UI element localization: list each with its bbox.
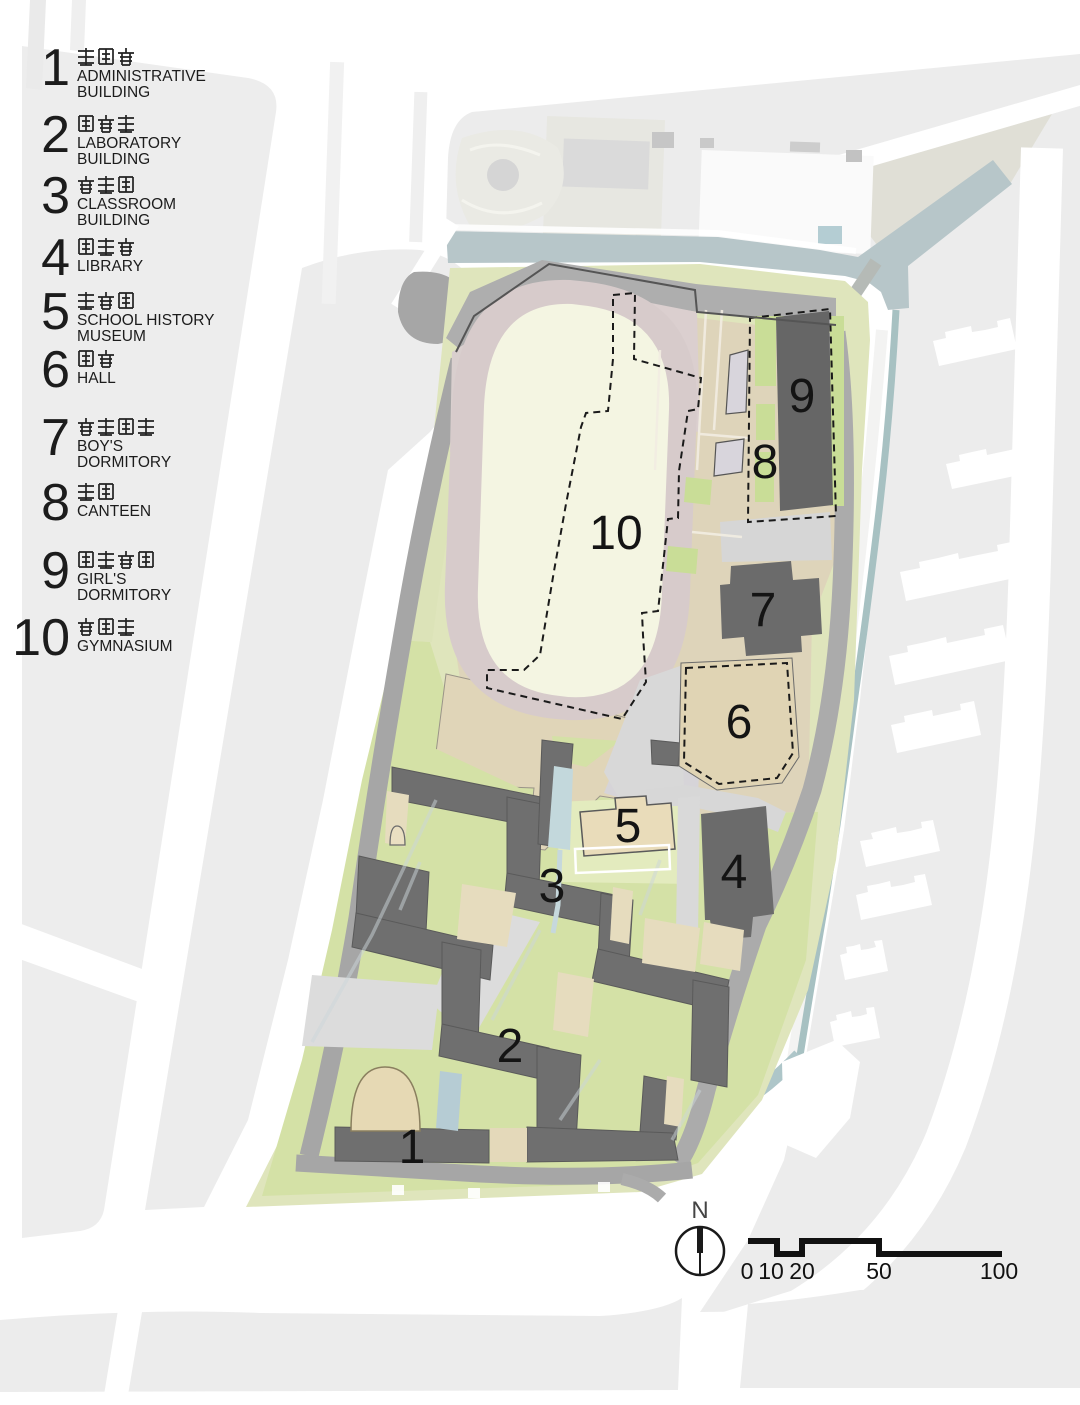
svg-text:2: 2 (41, 106, 70, 164)
svg-text:LABORATORY: LABORATORY (77, 135, 181, 152)
svg-text:10: 10 (758, 1258, 784, 1284)
svg-text:ADMINISTRATIVE: ADMINISTRATIVE (77, 68, 206, 85)
svg-text:5: 5 (41, 283, 70, 341)
svg-text:3: 3 (539, 860, 566, 913)
svg-text:GIRL'S: GIRL'S (77, 571, 126, 588)
svg-text:7: 7 (41, 409, 70, 467)
svg-text:1: 1 (41, 39, 70, 97)
svg-text:6: 6 (726, 696, 753, 749)
svg-text:4: 4 (41, 229, 70, 287)
svg-text:DORMITORY: DORMITORY (77, 454, 171, 471)
svg-text:8: 8 (41, 474, 70, 532)
svg-text:BUILDING: BUILDING (77, 151, 150, 168)
svg-text:BUILDING: BUILDING (77, 212, 150, 229)
svg-text:1: 1 (399, 1121, 426, 1174)
svg-text:BUILDING: BUILDING (77, 84, 150, 101)
svg-text:5: 5 (615, 800, 642, 853)
svg-text:3: 3 (41, 167, 70, 225)
svg-text:8: 8 (752, 436, 779, 489)
svg-text:MUSEUM: MUSEUM (77, 328, 146, 345)
svg-text:100: 100 (980, 1258, 1018, 1284)
svg-text:GYMNASIUM: GYMNASIUM (77, 638, 173, 655)
svg-text:BOY'S: BOY'S (77, 438, 123, 455)
svg-text:CLASSROOM: CLASSROOM (77, 196, 176, 213)
svg-text:9: 9 (41, 542, 70, 600)
svg-text:CANTEEN: CANTEEN (77, 503, 151, 520)
svg-text:HALL: HALL (77, 370, 116, 387)
svg-text:SCHOOL HISTORY: SCHOOL HISTORY (77, 312, 215, 329)
svg-text:20: 20 (789, 1258, 815, 1284)
svg-text:10: 10 (589, 507, 642, 560)
svg-text:6: 6 (41, 341, 70, 399)
svg-text:2: 2 (497, 1020, 524, 1073)
svg-text:N: N (691, 1197, 708, 1224)
svg-text:0: 0 (741, 1258, 754, 1284)
svg-text:7: 7 (750, 584, 777, 637)
svg-text:9: 9 (789, 370, 816, 423)
svg-text:DORMITORY: DORMITORY (77, 587, 171, 604)
svg-text:10: 10 (12, 609, 70, 667)
svg-text:4: 4 (721, 846, 748, 899)
svg-text:50: 50 (866, 1258, 892, 1284)
svg-text:LIBRARY: LIBRARY (77, 258, 143, 275)
